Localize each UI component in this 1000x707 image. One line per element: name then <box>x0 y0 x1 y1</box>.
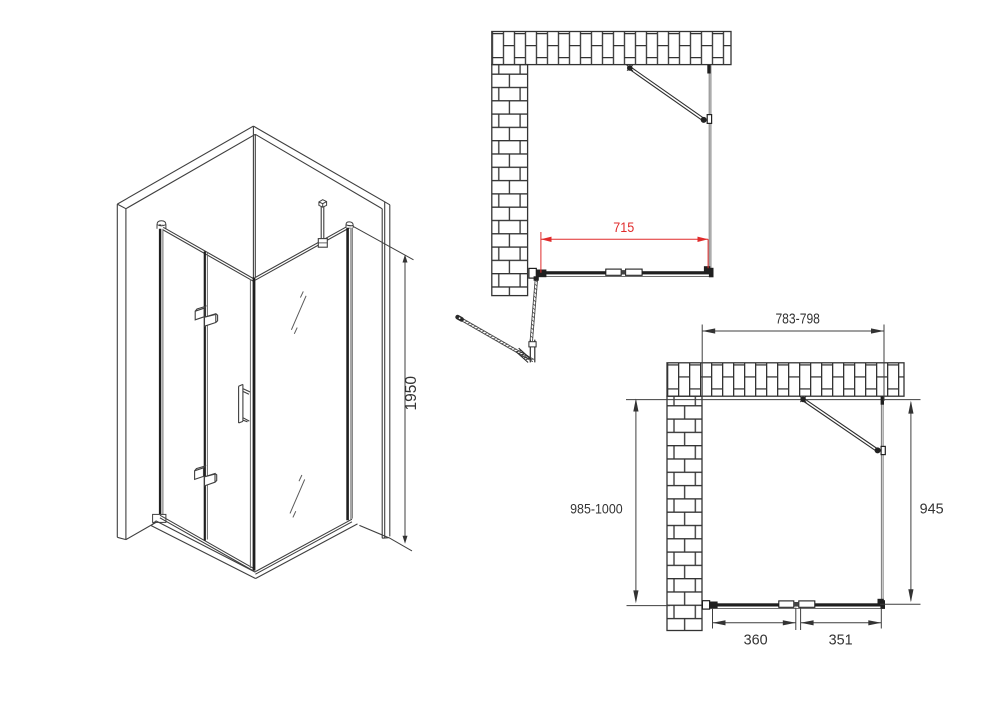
svg-text:715: 715 <box>613 220 634 235</box>
svg-text:1950: 1950 <box>403 376 420 411</box>
svg-text:783-798: 783-798 <box>775 310 820 327</box>
svg-text:985-1000: 985-1000 <box>570 500 623 516</box>
svg-text:351: 351 <box>829 632 853 649</box>
svg-text:360: 360 <box>744 632 768 649</box>
svg-text:945: 945 <box>920 501 944 518</box>
